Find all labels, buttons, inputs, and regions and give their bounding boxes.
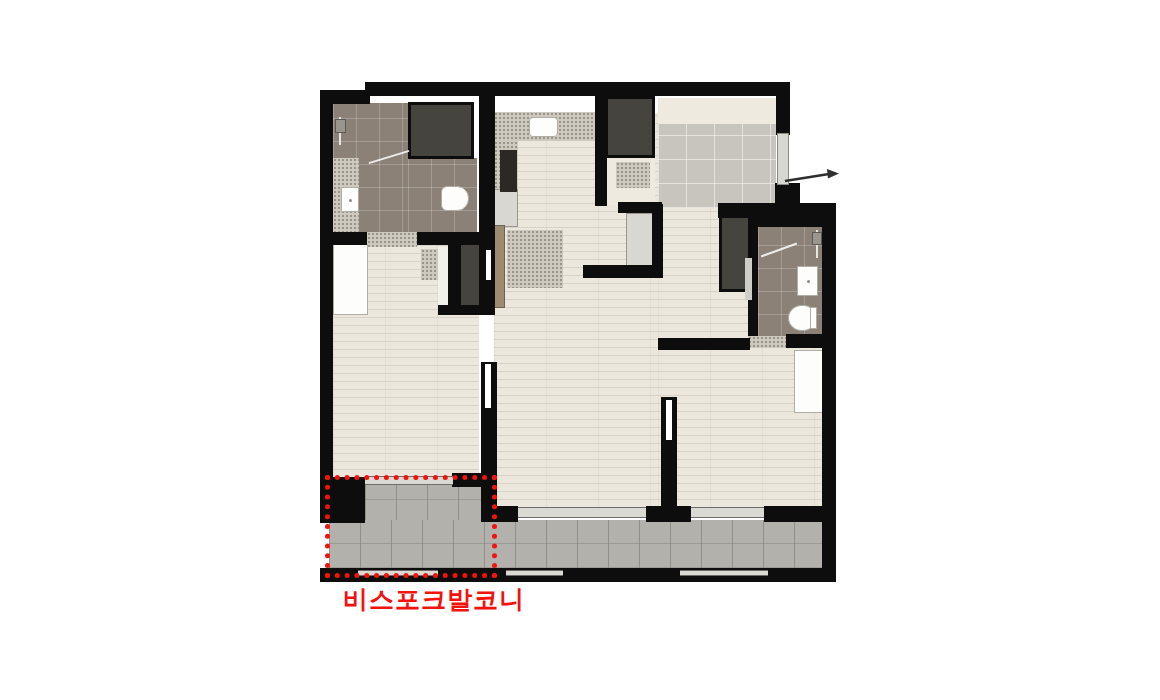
wall-fridge-right [652,204,663,278]
living-balcony-window-left [518,507,646,518]
bespoke-balcony-label: 비스포크발코니 [343,583,525,616]
dining-rug [507,230,563,288]
balcony-exterior-window-2 [506,570,563,576]
bathroom1-sink [341,187,359,212]
bathroom2-sink [797,266,818,296]
wall-right [822,205,836,582]
bathroom2-toilet-tank [810,307,817,329]
wall-left [320,90,333,523]
utility-mat [616,162,650,188]
entry-tile-floor [658,124,776,208]
floor-plan: 비스포크발코니 [0,0,1160,700]
bedroom-bed [333,244,368,315]
balcony-exterior-window-3 [680,570,768,576]
wall-bath1-bottom-a [333,232,367,245]
wall-bath2-south-a [658,338,750,350]
wall-bath2-south-b [786,334,822,348]
room2-door [666,400,672,440]
bathroom1-toilet [441,186,469,211]
shower-icon [334,115,346,147]
bathroom1-closet [408,102,474,159]
shower-icon [810,228,822,260]
wall-living-sill-stub [764,506,822,522]
bedroom-door-lower [485,364,491,408]
bathroom2-door [745,258,752,300]
kitchen-tall-closet [605,96,655,158]
wall-entry-jamb [775,183,800,205]
wall-kitchen-right [595,96,607,206]
kitchen-cooktop [500,150,517,192]
entrance-arrow-icon [782,166,840,186]
bedroom-door [486,250,491,280]
kitchen-sink [529,117,558,137]
bathroom1-threshold [367,232,417,247]
refrigerator [626,213,654,273]
wall-top-main [365,82,790,96]
bathroom2-threshold [748,336,786,348]
wall-foyer-bottom [718,203,836,218]
wall-hall-divider [583,265,653,278]
wall-bath1-bottom-b [417,232,479,245]
bespoke-balcony-highlight [325,475,497,578]
wall-entry-corner [776,82,790,135]
living-balcony-window-right [691,507,764,518]
entry-upper-strip [658,98,776,125]
wall-center-foot [646,506,691,522]
bedroom-mat [421,249,438,280]
wall-closet-bottom [438,305,495,315]
